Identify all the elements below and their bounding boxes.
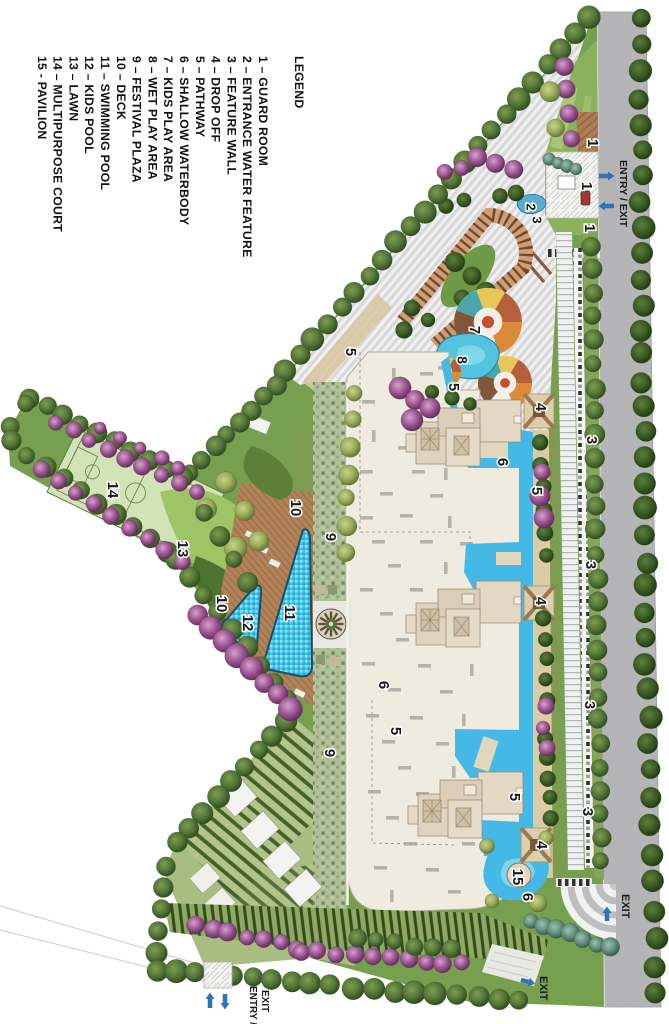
svg-text:4 – DROP OFF: 4 – DROP OFF xyxy=(209,56,223,143)
svg-text:1: 1 xyxy=(578,182,595,190)
svg-text:10: 10 xyxy=(287,500,304,517)
svg-text:3: 3 xyxy=(530,216,545,223)
svg-text:2: 2 xyxy=(524,203,539,210)
svg-text:EXIT: EXIT xyxy=(619,894,631,919)
svg-text:8: 8 xyxy=(454,356,470,364)
svg-text:10: 10 xyxy=(213,596,230,613)
svg-text:1 – GUARD ROOM: 1 – GUARD ROOM xyxy=(256,56,270,166)
svg-text:EXIT: EXIT xyxy=(537,976,549,1001)
svg-text:5: 5 xyxy=(445,383,462,391)
svg-text:2 – ENTRANCE WATER FEATURE: 2 – ENTRANCE WATER FEATURE xyxy=(240,56,254,258)
svg-text:3: 3 xyxy=(579,808,596,816)
svg-text:4: 4 xyxy=(533,841,550,850)
svg-text:6: 6 xyxy=(519,893,536,901)
svg-text:6: 6 xyxy=(494,458,511,466)
svg-text:EXIT: EXIT xyxy=(259,990,270,1012)
svg-text:5 – PATHWAY: 5 – PATHWAY xyxy=(193,56,207,137)
svg-text:11: 11 xyxy=(281,605,298,621)
svg-text:ENTRY / EXIT: ENTRY / EXIT xyxy=(617,160,629,228)
svg-text:1: 1 xyxy=(584,139,601,147)
svg-text:13 – LAWN: 13 – LAWN xyxy=(66,56,80,121)
svg-text:10 – DECK: 10 – DECK xyxy=(114,56,128,120)
svg-text:9 – FESTIVAL PLAZA: 9 – FESTIVAL PLAZA xyxy=(130,56,144,183)
svg-text:12 – KIDS POOL: 12 – KIDS POOL xyxy=(82,56,96,154)
svg-text:5: 5 xyxy=(506,793,523,801)
svg-text:9: 9 xyxy=(321,749,338,757)
svg-text:14: 14 xyxy=(104,482,121,499)
svg-text:15: 15 xyxy=(509,869,526,886)
svg-text:3 – FEATURE WALL: 3 – FEATURE WALL xyxy=(224,56,238,175)
svg-text:6: 6 xyxy=(375,681,392,689)
svg-text:11 – SWIMMING POOL: 11 – SWIMMING POOL xyxy=(98,56,112,190)
svg-text:13: 13 xyxy=(174,541,191,558)
svg-text:7 – KIDS PLAY AREA: 7 – KIDS PLAY AREA xyxy=(161,56,175,182)
svg-text:3: 3 xyxy=(582,561,599,569)
svg-text:9: 9 xyxy=(322,533,339,541)
svg-text:3: 3 xyxy=(581,701,598,709)
svg-text:15 - PAVILION: 15 - PAVILION xyxy=(35,56,49,139)
svg-text:6 – SHALLOW WATERBODY: 6 – SHALLOW WATERBODY xyxy=(177,56,191,225)
svg-text:5: 5 xyxy=(342,348,359,356)
svg-text:14 – MULTIPURPOSE COURT: 14 – MULTIPURPOSE COURT xyxy=(51,56,65,232)
svg-text:5: 5 xyxy=(387,727,404,735)
svg-text:12: 12 xyxy=(239,615,256,632)
svg-text:ENTRY /: ENTRY / xyxy=(247,986,258,1024)
svg-text:4: 4 xyxy=(532,403,549,412)
svg-text:LEGEND: LEGEND xyxy=(292,56,306,108)
svg-text:8 – WET PLAY AREA: 8 – WET PLAY AREA xyxy=(145,56,159,180)
svg-text:3: 3 xyxy=(583,436,600,444)
svg-text:5: 5 xyxy=(528,487,545,495)
svg-text:1: 1 xyxy=(581,224,598,232)
svg-text:4: 4 xyxy=(532,597,549,606)
svg-text:7: 7 xyxy=(466,326,483,334)
